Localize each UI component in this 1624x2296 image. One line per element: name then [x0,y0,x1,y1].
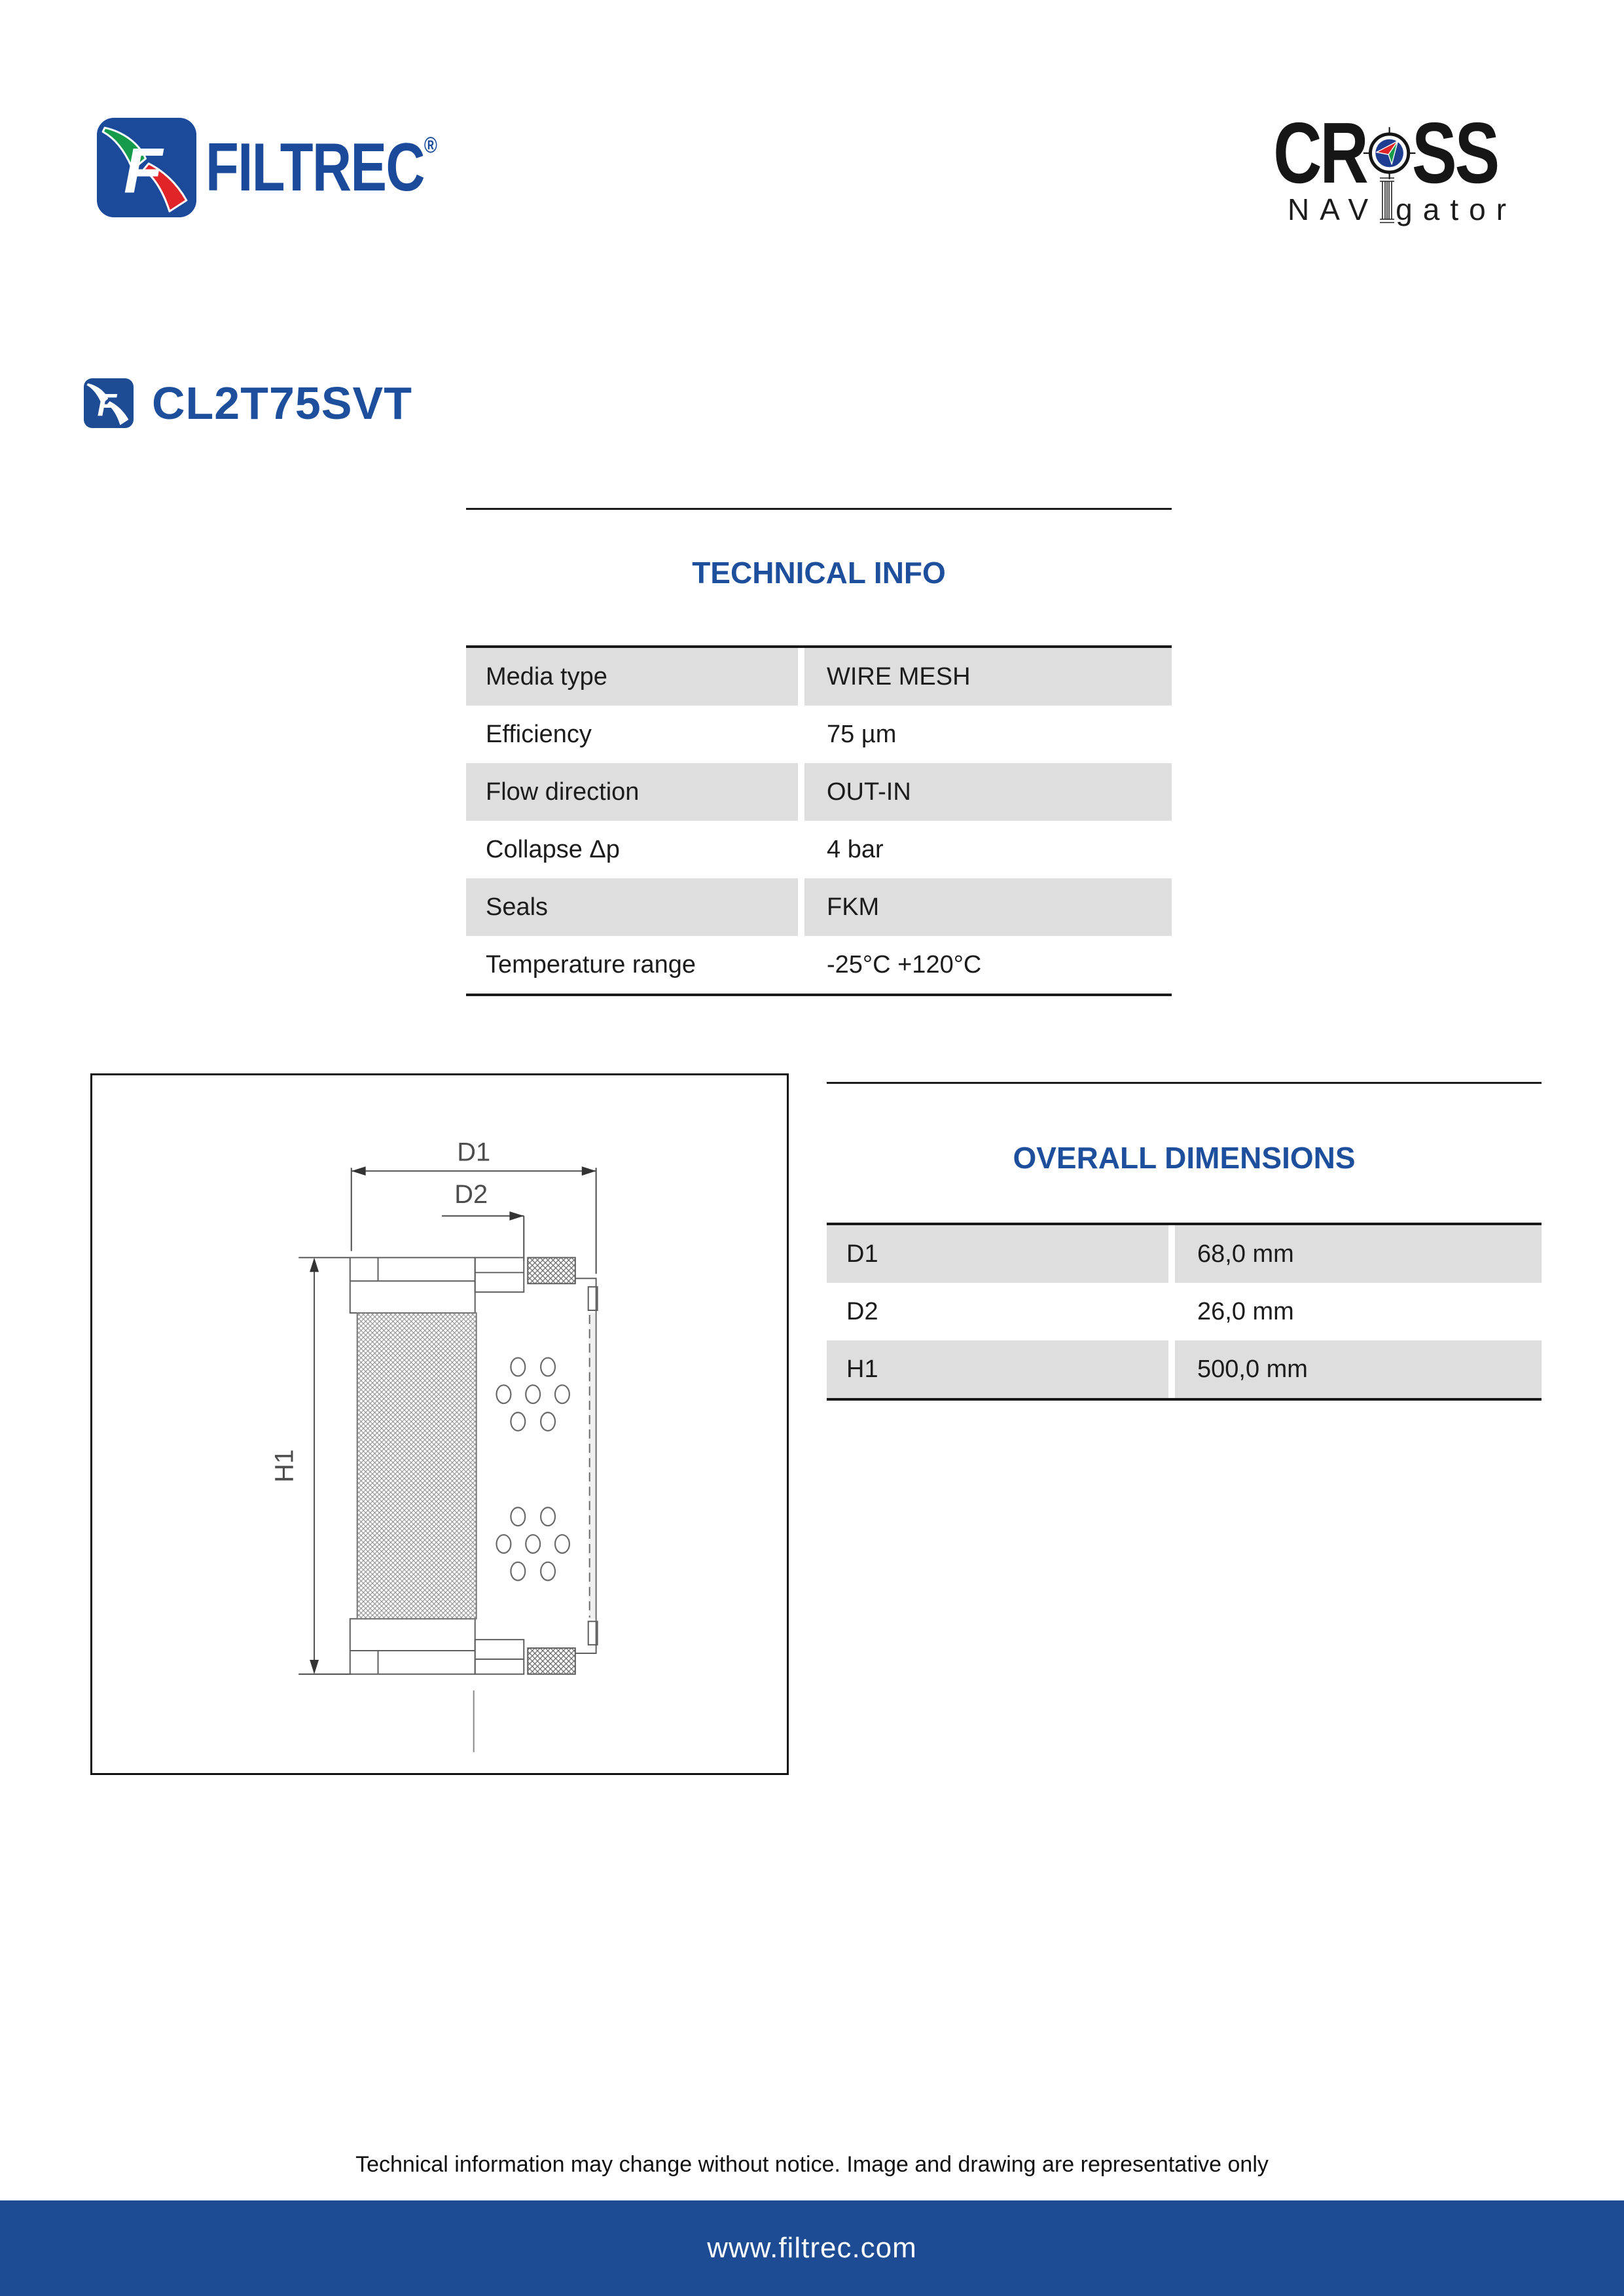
table-row: Flow direction OUT-IN [466,763,1172,821]
technical-info-title: TECHNICAL INFO [466,555,1172,590]
spec-value: 75 µm [804,706,1172,763]
filtrec-wordmark: FILTREC® [206,129,437,207]
spec-label: Media type [466,648,798,706]
product-brand-icon: F [84,378,134,428]
d2-dimension [442,1216,524,1261]
technical-info-rule [466,508,1172,510]
spec-value: OUT-IN [804,763,1172,821]
drawing-d1-label: D1 [457,1138,490,1166]
dimension-label: D1 [827,1225,1168,1283]
product-title: F CL2T75SVT [84,377,412,429]
website-link[interactable]: www.filtrec.com [707,2232,917,2265]
datasheet-page: F FILTREC® CR SS NAV [0,0,1624,2296]
disclaimer-text: Technical information may change without… [0,2152,1624,2178]
drawing-d2-label: D2 [454,1180,488,1209]
table-row: Temperature range -25°C +120°C [466,936,1172,994]
dimension-label: H1 [827,1340,1168,1398]
cross-navigator-logo: CR SS NAV gator [1247,103,1522,227]
spec-label: Collapse Δp [466,821,798,878]
table-row: H1 500,0 mm [827,1340,1542,1398]
h1-dimension [298,1257,352,1674]
product-code: CL2T75SVT [152,377,412,429]
spec-label: Seals [466,878,798,936]
cross-text-right: SS [1412,103,1498,202]
table-row: Efficiency 75 µm [466,706,1172,763]
spec-label: Flow direction [466,763,798,821]
svg-text:F: F [98,387,118,423]
drawing-h1-label: H1 [270,1449,298,1482]
spec-label: Temperature range [466,936,798,994]
filter-element-outline [350,1257,598,1674]
spec-value: 4 bar [804,821,1172,878]
svg-text:F: F [124,135,164,206]
spec-value: FKM [804,878,1172,936]
spec-value: WIRE MESH [804,648,1172,706]
technical-info-table: Media type WIRE MESH Efficiency 75 µm Fl… [466,645,1172,996]
table-row: Media type WIRE MESH [466,648,1172,706]
table-row: D2 26,0 mm [827,1283,1542,1340]
perforation-holes-upper [497,1358,569,1431]
dimension-value: 68,0 mm [1175,1225,1542,1283]
table-row: Collapse Δp 4 bar [466,821,1172,878]
core-tube [589,1312,596,1620]
column-icon [1379,176,1396,226]
filtrec-logo: F FILTREC® [97,118,495,217]
filtrec-logo-icon: F [97,118,196,217]
dimension-value: 500,0 mm [1175,1340,1542,1398]
technical-drawing: D1 D2 H1 [90,1073,789,1775]
spec-label: Efficiency [466,706,798,763]
overall-dimensions-title: OVERALL DIMENSIONS [827,1140,1542,1175]
registered-mark: ® [424,133,437,158]
dimension-value: 26,0 mm [1175,1283,1542,1340]
spec-value: -25°C +120°C [804,936,1172,994]
dimension-label: D2 [827,1283,1168,1340]
overall-dimensions-table: D1 68,0 mm D2 26,0 mm H1 500,0 mm [827,1223,1542,1401]
table-row: Seals FKM [466,878,1172,936]
table-row: D1 68,0 mm [827,1225,1542,1283]
overall-dimensions-rule [827,1082,1542,1084]
footer-bar: www.filtrec.com [0,2200,1624,2296]
cross-text-left: CR [1273,103,1366,202]
perforation-holes-lower [497,1507,569,1580]
